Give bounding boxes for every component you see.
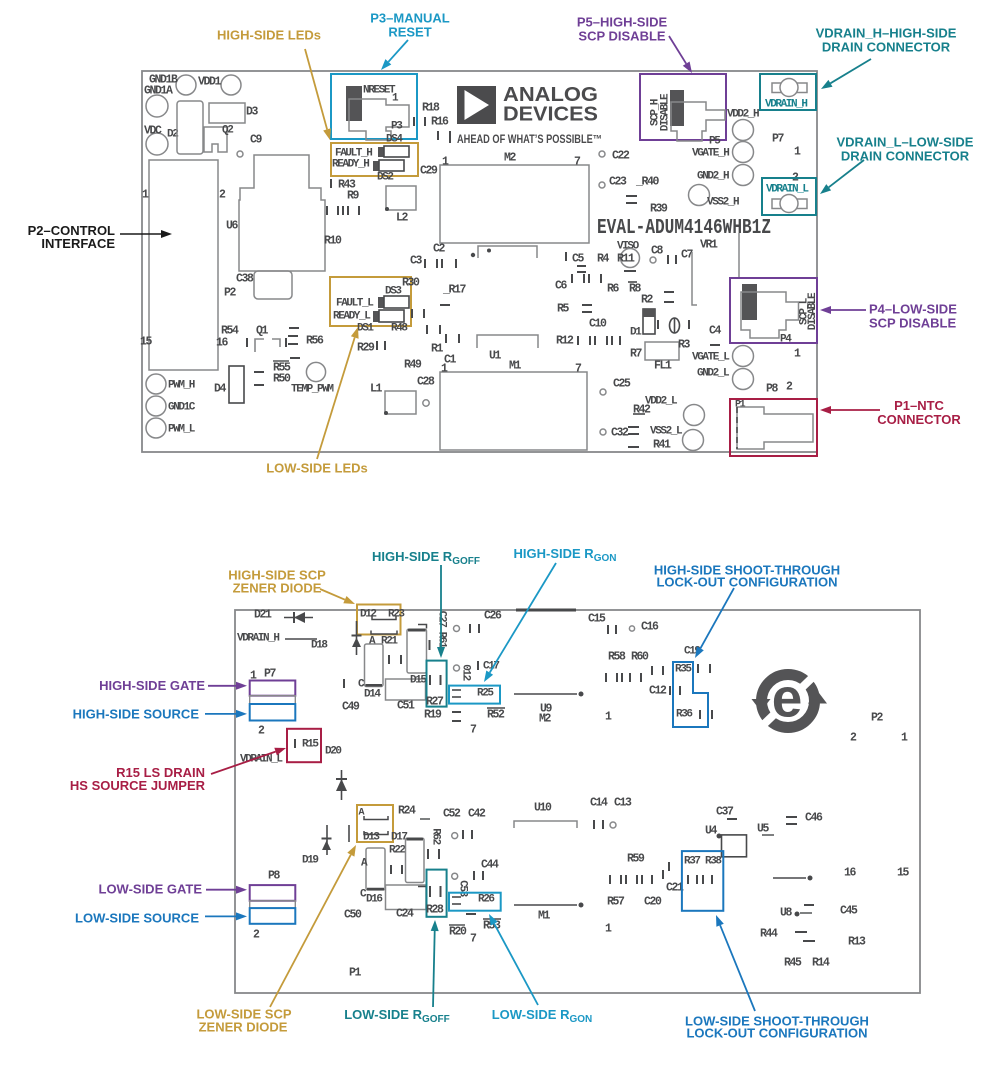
svg-text:ZENER DIODE: ZENER DIODE	[233, 581, 322, 596]
svg-text:LOW-SIDE RGOFF: LOW-SIDE RGOFF	[344, 1007, 450, 1025]
svg-text:FAULT_L: FAULT_L	[336, 297, 374, 309]
svg-text:C12: C12	[649, 685, 667, 698]
svg-text:P3–MANUAL: P3–MANUAL	[370, 11, 450, 26]
svg-text:R52: R52	[487, 709, 505, 722]
svg-text:R14: R14	[812, 957, 830, 970]
svg-text:R13: R13	[848, 936, 866, 949]
svg-text:C10: C10	[589, 318, 607, 331]
svg-text:C29: C29	[420, 165, 438, 178]
svg-text:D13: D13	[363, 831, 380, 843]
svg-text:R49: R49	[404, 359, 422, 372]
svg-text:R9: R9	[347, 190, 360, 203]
svg-text:AHEAD OF WHAT’S POSSIBLE™: AHEAD OF WHAT’S POSSIBLE™	[457, 134, 602, 146]
svg-text:CONNECTOR: CONNECTOR	[877, 412, 961, 427]
svg-text:D12: D12	[360, 608, 376, 620]
svg-text:D1: D1	[630, 326, 642, 338]
svg-text:1: 1	[392, 92, 399, 104]
svg-text:2: 2	[786, 381, 793, 394]
svg-text:C26: C26	[484, 610, 502, 623]
svg-text:R12: R12	[556, 335, 574, 348]
svg-text:C42: C42	[468, 808, 486, 821]
svg-text:D19: D19	[302, 854, 318, 866]
svg-text:GND1A: GND1A	[144, 85, 173, 98]
svg-text:R20: R20	[449, 926, 467, 939]
svg-text:HIGH-SIDE LEDs: HIGH-SIDE LEDs	[217, 28, 321, 43]
svg-text:C20: C20	[644, 896, 662, 909]
svg-text:DRAIN CONNECTOR: DRAIN CONNECTOR	[822, 40, 951, 55]
svg-text:M2: M2	[504, 152, 517, 165]
svg-text:DS2: DS2	[377, 171, 393, 183]
svg-text:R29: R29	[357, 342, 375, 355]
svg-text:R1: R1	[431, 343, 444, 356]
svg-text:FL1: FL1	[654, 360, 672, 373]
svg-text:R62: R62	[430, 828, 442, 844]
svg-text:P1: P1	[349, 967, 362, 980]
svg-text:R22: R22	[389, 844, 405, 856]
svg-text:SCP DISABLE: SCP DISABLE	[869, 316, 956, 331]
svg-text:RESET: RESET	[388, 25, 431, 40]
svg-text:R2: R2	[641, 294, 654, 307]
svg-text:PWM_H: PWM_H	[168, 379, 195, 391]
svg-text:VDRAIN_H: VDRAIN_H	[237, 632, 279, 644]
svg-text:M1: M1	[509, 360, 522, 373]
svg-text:R54: R54	[221, 325, 239, 338]
svg-text:1: 1	[794, 146, 801, 159]
svg-text:_R40: _R40	[635, 176, 660, 189]
svg-text:C6: C6	[555, 280, 568, 293]
svg-text:R37: R37	[684, 855, 700, 867]
svg-text:P3: P3	[391, 120, 403, 132]
svg-text:R27: R27	[426, 696, 444, 709]
svg-text:P2: P2	[224, 287, 237, 300]
svg-text:SCP DISABLE: SCP DISABLE	[578, 29, 665, 44]
svg-text:LOW-SIDE RGON: LOW-SIDE RGON	[492, 1007, 593, 1025]
svg-text:R18: R18	[422, 102, 440, 115]
svg-text:R41: R41	[653, 439, 671, 452]
svg-text:C52: C52	[443, 808, 461, 821]
svg-text:D18: D18	[311, 639, 328, 651]
svg-text:7: 7	[470, 933, 477, 946]
svg-text:DISABLE: DISABLE	[660, 93, 672, 131]
svg-text:012: 012	[460, 664, 472, 680]
svg-text:R44: R44	[760, 928, 778, 941]
svg-text:1: 1	[442, 156, 449, 169]
svg-text:EVAL-ADUM4146WHB1Z: EVAL-ADUM4146WHB1Z	[597, 217, 771, 240]
svg-text:R56: R56	[306, 335, 324, 348]
svg-text:C45: C45	[840, 905, 858, 918]
svg-text:R58: R58	[608, 651, 626, 664]
svg-text:C4: C4	[709, 325, 722, 338]
svg-text:VDD2_L: VDD2_L	[645, 395, 678, 407]
svg-text:VSS2_H: VSS2_H	[707, 196, 739, 208]
svg-text:R28: R28	[426, 904, 444, 917]
svg-text:READY_H: READY_H	[332, 158, 369, 170]
svg-text:P7: P7	[772, 133, 785, 146]
svg-text:D16: D16	[366, 893, 382, 905]
svg-text:P1–NTC: P1–NTC	[894, 398, 944, 413]
svg-text:R8: R8	[629, 283, 642, 296]
svg-text:P7: P7	[264, 668, 277, 681]
svg-text:U8: U8	[780, 907, 793, 920]
svg-text:C13: C13	[614, 797, 632, 810]
svg-text:16: 16	[844, 867, 857, 880]
svg-text:TEMP_PWM: TEMP_PWM	[291, 383, 334, 395]
svg-text:R19: R19	[424, 709, 442, 722]
svg-text:R60: R60	[631, 651, 649, 664]
svg-text:INTERFACE: INTERFACE	[41, 236, 115, 251]
svg-text:_R17: _R17	[442, 284, 467, 297]
svg-text:2: 2	[253, 929, 260, 942]
svg-text:R59: R59	[627, 853, 645, 866]
svg-text:VDD2_H: VDD2_H	[727, 108, 759, 120]
svg-text:C25: C25	[613, 378, 631, 391]
svg-text:C14: C14	[590, 797, 608, 810]
svg-text:R24: R24	[398, 805, 416, 818]
svg-text:C44: C44	[481, 859, 499, 872]
svg-text:C51: C51	[397, 700, 415, 713]
svg-text:1: 1	[794, 348, 801, 361]
svg-text:D4: D4	[214, 383, 227, 396]
svg-text:PWM_L: PWM_L	[168, 423, 196, 435]
svg-text:VDD1: VDD1	[198, 76, 222, 89]
svg-text:VR1: VR1	[700, 239, 718, 252]
svg-text:DRAIN CONNECTOR: DRAIN CONNECTOR	[841, 149, 970, 164]
svg-text:C16: C16	[641, 621, 659, 634]
svg-text:LOCK-OUT CONFIGURATION: LOCK-OUT CONFIGURATION	[686, 1026, 867, 1041]
svg-text:C3: C3	[410, 255, 423, 268]
svg-text:READY_L: READY_L	[333, 310, 371, 322]
svg-text:C24: C24	[396, 908, 414, 921]
svg-text:C23: C23	[609, 176, 627, 189]
svg-text:C49: C49	[342, 701, 360, 714]
svg-text:U1: U1	[489, 350, 502, 363]
svg-text:C46: C46	[805, 812, 823, 825]
svg-text:15: 15	[140, 336, 153, 349]
svg-text:U6: U6	[226, 220, 239, 233]
svg-text:15: 15	[897, 867, 910, 880]
svg-text:GND1C: GND1C	[168, 401, 196, 413]
svg-text:HIGH-SIDE GATE: HIGH-SIDE GATE	[99, 678, 205, 693]
svg-text:R10: R10	[324, 235, 342, 248]
svg-text:GND2_H: GND2_H	[697, 170, 729, 182]
svg-text:L1: L1	[370, 383, 383, 396]
svg-text:C2: C2	[433, 243, 446, 256]
svg-text:VDRAIN_L–LOW-SIDE: VDRAIN_L–LOW-SIDE	[837, 135, 974, 150]
svg-text:R7: R7	[630, 348, 643, 361]
svg-text:C5: C5	[572, 253, 585, 266]
svg-text:R57: R57	[607, 896, 625, 909]
svg-text:DISABLE: DISABLE	[807, 292, 819, 330]
svg-text:VSS2_L: VSS2_L	[650, 425, 683, 437]
svg-text:LOW-SIDE LEDs: LOW-SIDE LEDs	[266, 461, 368, 476]
svg-text:VGATE_L: VGATE_L	[692, 351, 730, 363]
svg-text:VDC: VDC	[144, 125, 162, 138]
svg-text:2: 2	[219, 189, 226, 202]
svg-text:VGATE_H: VGATE_H	[692, 147, 729, 159]
svg-text:2: 2	[850, 732, 857, 745]
svg-text:DS1: DS1	[357, 322, 374, 334]
svg-text:C15: C15	[588, 613, 606, 626]
svg-text:C22: C22	[612, 150, 630, 163]
svg-text:P4: P4	[780, 333, 792, 345]
svg-text:Q1: Q1	[256, 325, 269, 338]
svg-text:DEVICES: DEVICES	[503, 104, 598, 126]
svg-text:2: 2	[258, 725, 265, 738]
svg-text:R25: R25	[477, 687, 494, 699]
svg-text:7: 7	[574, 156, 581, 169]
svg-text:P8: P8	[766, 383, 779, 396]
svg-text:C37: C37	[716, 806, 734, 819]
svg-text:R11: R11	[617, 253, 635, 266]
svg-text:R39: R39	[650, 203, 668, 216]
svg-text:R6: R6	[607, 283, 620, 296]
svg-text:ZENER DIODE: ZENER DIODE	[199, 1020, 288, 1035]
svg-text:R38: R38	[705, 855, 722, 867]
svg-text:C32: C32	[611, 427, 629, 440]
svg-text:U5: U5	[757, 823, 770, 836]
svg-text:HIGH-SIDE SOURCE: HIGH-SIDE SOURCE	[73, 707, 200, 722]
svg-text:HS SOURCE JUMPER: HS SOURCE JUMPER	[70, 778, 206, 793]
svg-text:GND2_L: GND2_L	[697, 367, 730, 379]
svg-text:R48: R48	[391, 322, 408, 334]
svg-text:P2: P2	[871, 712, 884, 725]
svg-text:HIGH-SIDE RGON: HIGH-SIDE RGON	[514, 546, 617, 564]
svg-text:VDRAIN_L: VDRAIN_L	[766, 183, 809, 195]
svg-text:1: 1	[605, 923, 612, 936]
svg-text:C9: C9	[250, 134, 263, 147]
svg-text:P4–LOW-SIDE: P4–LOW-SIDE	[869, 302, 957, 317]
svg-text:D15: D15	[410, 674, 427, 686]
svg-text:C38: C38	[236, 273, 254, 286]
svg-text:1: 1	[901, 732, 908, 745]
svg-text:P5–HIGH-SIDE: P5–HIGH-SIDE	[577, 15, 668, 30]
svg-text:R16: R16	[431, 116, 449, 129]
svg-text:D3: D3	[246, 106, 259, 119]
svg-text:R3: R3	[678, 339, 691, 352]
svg-text:HIGH-SIDE RGOFF: HIGH-SIDE RGOFF	[372, 549, 480, 567]
svg-text:1: 1	[142, 189, 149, 202]
svg-text:D14: D14	[364, 688, 381, 700]
svg-text:R26: R26	[478, 893, 494, 905]
svg-text:LOW-SIDE SOURCE: LOW-SIDE SOURCE	[75, 910, 199, 925]
svg-text:Q2: Q2	[222, 124, 233, 136]
svg-text:P8: P8	[268, 870, 281, 883]
svg-text:7: 7	[575, 363, 582, 376]
svg-text:VDRAIN_H: VDRAIN_H	[765, 98, 807, 110]
svg-text:C28: C28	[417, 376, 435, 389]
svg-text:16: 16	[216, 337, 229, 350]
svg-text:R15: R15	[302, 738, 319, 750]
svg-text:R35: R35	[675, 663, 692, 675]
svg-text:R45: R45	[784, 957, 802, 970]
svg-text:R30: R30	[402, 277, 420, 290]
svg-text:R5: R5	[557, 303, 570, 316]
svg-text:LOCK-OUT CONFIGURATION: LOCK-OUT CONFIGURATION	[656, 575, 837, 590]
svg-text:C8: C8	[651, 245, 664, 258]
svg-text:1: 1	[605, 711, 612, 724]
svg-text:P5: P5	[709, 135, 721, 147]
svg-text:LOW-SIDE GATE: LOW-SIDE GATE	[99, 881, 203, 896]
svg-text:M1: M1	[538, 910, 551, 923]
svg-text:R50: R50	[273, 373, 291, 386]
svg-text:U10: U10	[534, 802, 552, 815]
svg-text:D20: D20	[325, 745, 341, 757]
svg-text:C53: C53	[457, 880, 469, 897]
svg-text:R36: R36	[676, 708, 692, 720]
svg-text:L2: L2	[396, 212, 409, 225]
svg-text:7: 7	[470, 724, 477, 737]
svg-text:C50: C50	[344, 909, 362, 922]
svg-text:VDRAIN_H–HIGH-SIDE: VDRAIN_H–HIGH-SIDE	[816, 26, 957, 41]
svg-text:M2: M2	[539, 713, 552, 726]
svg-text:U4: U4	[705, 825, 718, 838]
svg-text:R4: R4	[597, 253, 610, 266]
svg-text:e: e	[772, 667, 803, 729]
svg-text:D21: D21	[254, 609, 272, 622]
